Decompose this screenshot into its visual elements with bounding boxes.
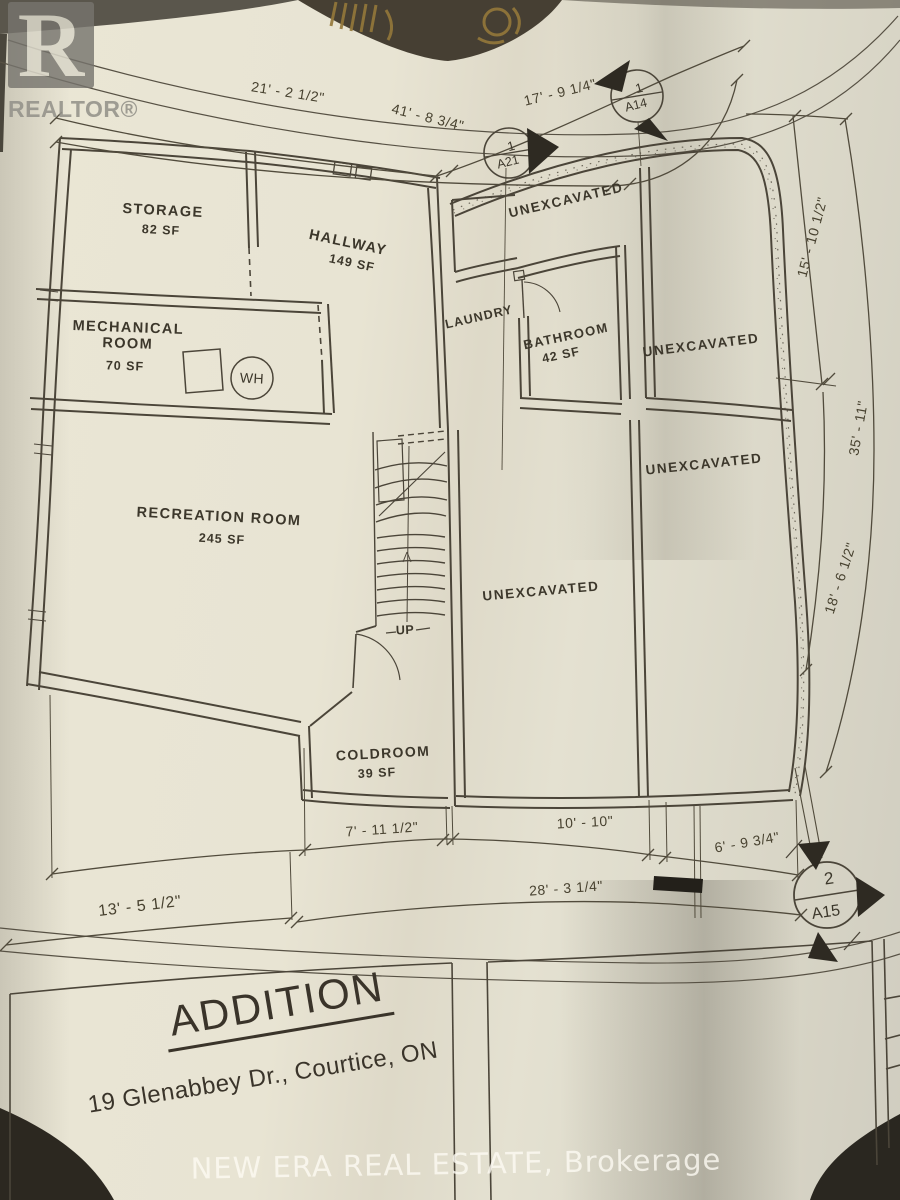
dim-bottom-seg2: 10' - 10" <box>556 813 613 832</box>
section-marker-shapes <box>484 60 885 962</box>
floorplan-photo: STORAGE 82 SF HALLWAY 149 SF MECHANICAL … <box>0 0 900 1200</box>
floorplan-linework <box>0 0 900 1200</box>
realtor-logo-letter: R <box>18 2 84 88</box>
water-heater-label: WH <box>239 369 264 386</box>
room-area-storage: 82 SF <box>141 222 180 238</box>
foundation-hatch <box>450 138 809 796</box>
stairs-up-label: UP <box>396 623 415 638</box>
realtor-logo-block: R <box>8 2 94 88</box>
room-area-mechanical: 70 SF <box>106 358 145 373</box>
room-area-recreation: 245 SF <box>199 531 246 547</box>
room-area-coldroom: 39 SF <box>357 765 396 781</box>
solid-wall-mark <box>653 876 703 893</box>
furnace-box <box>183 349 223 393</box>
realtor-logo: R REALTOR® <box>8 2 118 123</box>
doors <box>28 162 560 688</box>
realtor-logo-text: REALTOR® <box>8 96 118 123</box>
stairs <box>356 431 447 633</box>
room-label-mechanical: MECHANICAL ROOM <box>67 318 188 354</box>
